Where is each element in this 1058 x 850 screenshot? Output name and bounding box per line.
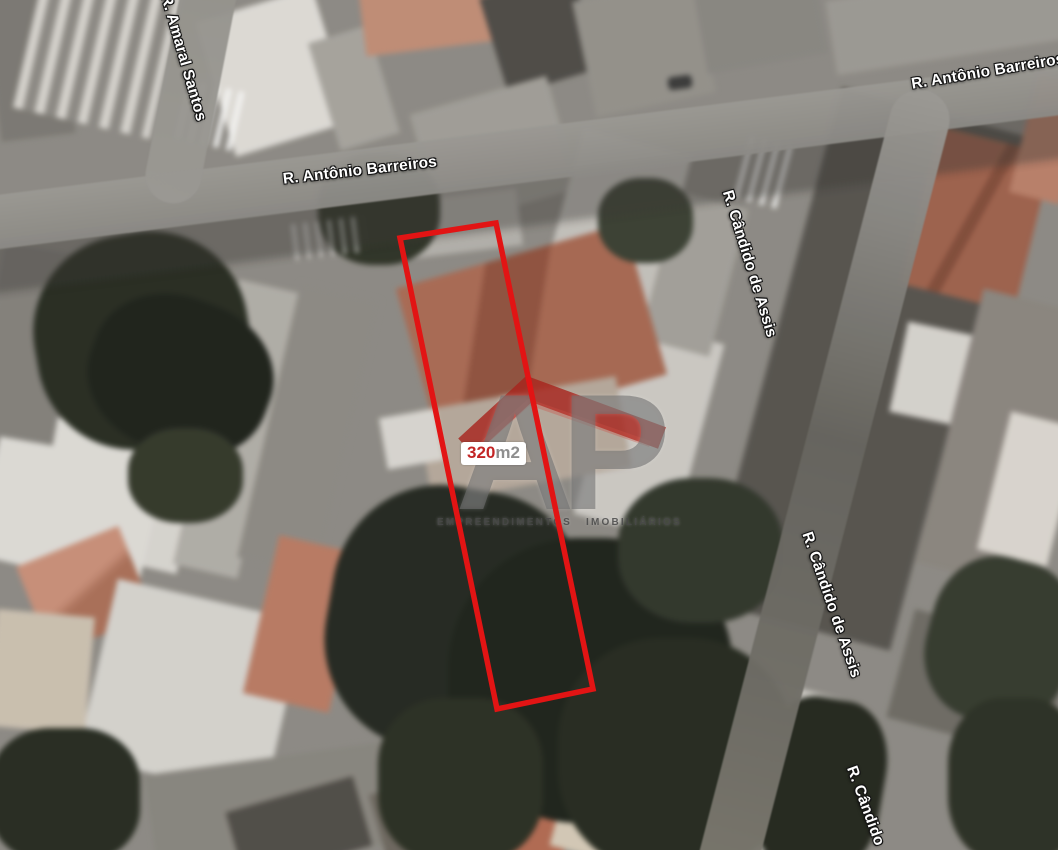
property-outline [400, 223, 593, 709]
property-boundary-overlay [0, 0, 1058, 850]
area-value: 320 [467, 443, 495, 462]
satellite-map-view[interactable]: R. Amaral Santos R. Antônio Barreiros R.… [0, 0, 1058, 850]
area-unit: m2 [495, 443, 520, 462]
area-badge: 320m2 [461, 442, 526, 465]
